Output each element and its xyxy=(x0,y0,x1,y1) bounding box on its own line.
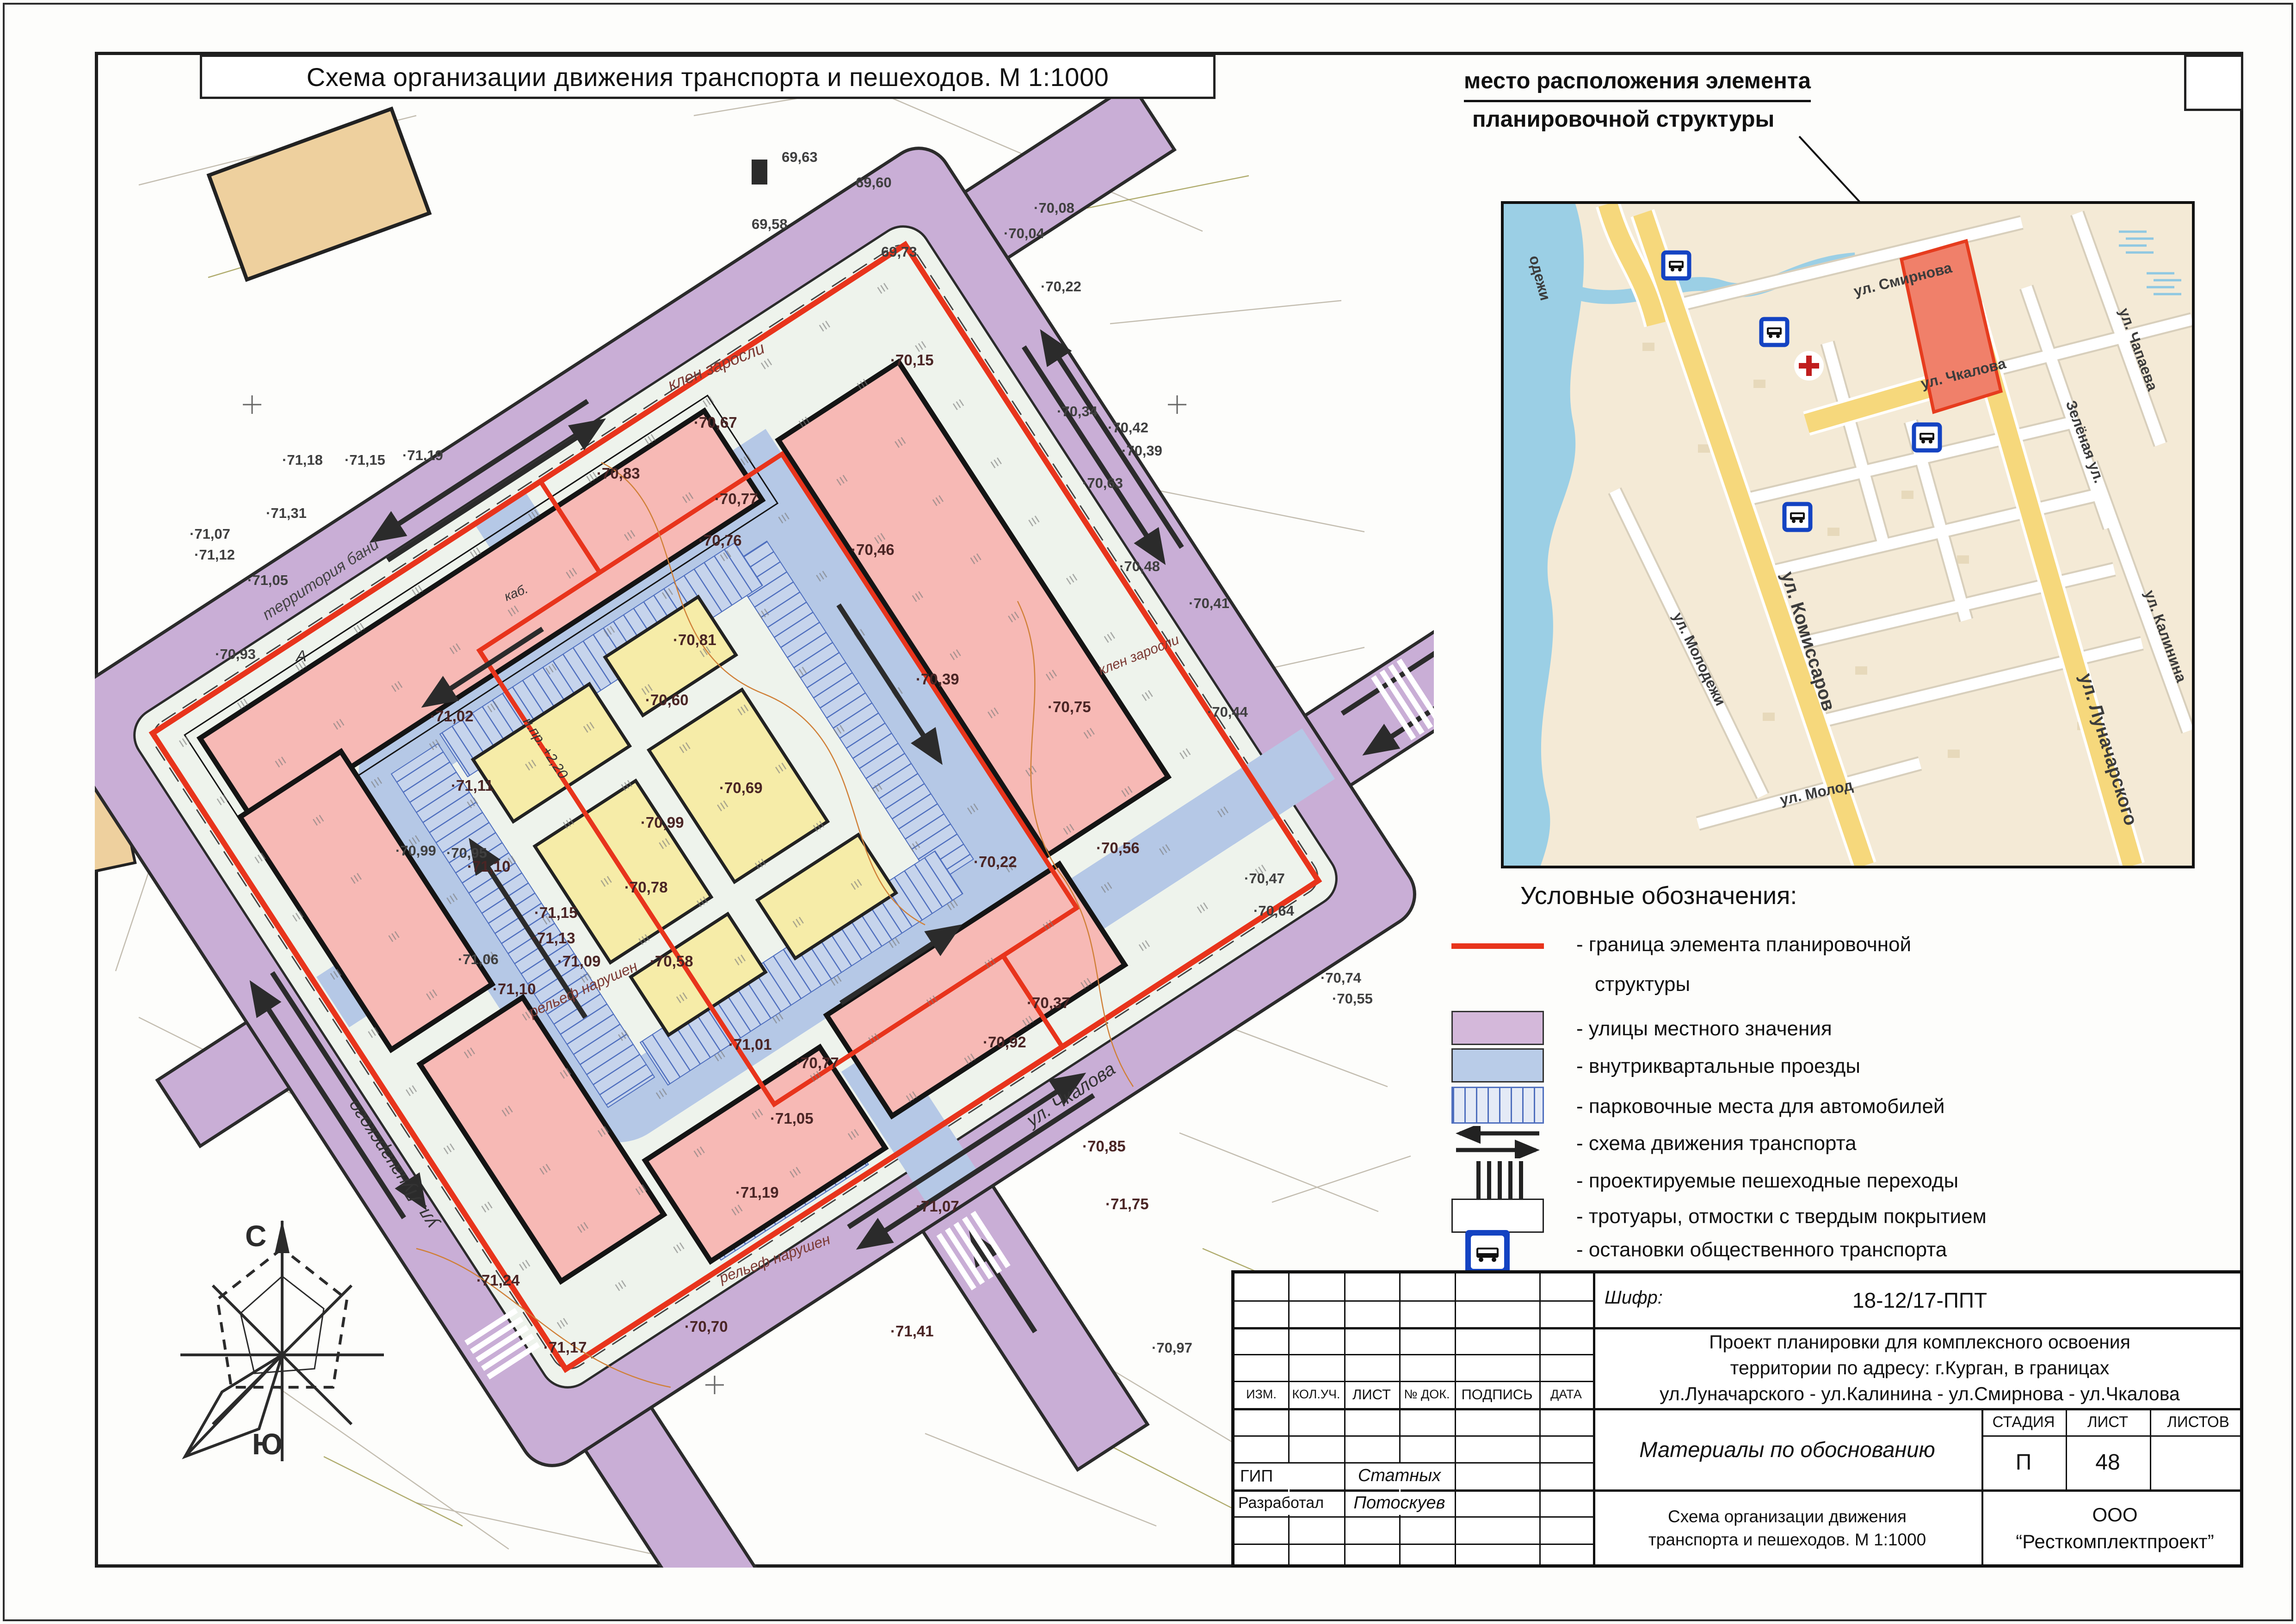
elevation-label: ·70,22 xyxy=(974,853,1017,870)
legend-item-label: - граница элемента планировочной xyxy=(1576,933,1911,956)
legend-swatch-sidewalks xyxy=(1451,1199,1544,1233)
organization-line: “Ресткомплектпроект” xyxy=(2016,1528,2214,1555)
doc-title-line: Схема организации движения xyxy=(1668,1505,1907,1528)
elevation-label: ·70,04 xyxy=(1004,225,1045,241)
elevation-label: ·71,15 xyxy=(534,904,578,921)
developer-label: Разработал xyxy=(1238,1489,1324,1516)
sheet-value: 48 xyxy=(2066,1435,2150,1489)
elevation-label: ·70,76 xyxy=(698,532,742,549)
project-title: Проект планировки для комплексного освое… xyxy=(1593,1328,2247,1408)
elevation-label: ·70,99 xyxy=(641,814,684,831)
stamp-line xyxy=(1455,1273,1456,1564)
elevation-label: ·71,01 xyxy=(728,1036,772,1053)
stamp-line xyxy=(1399,1273,1401,1564)
plan-note: А xyxy=(295,647,307,665)
organization: ООО “Ресткомплектпроект” xyxy=(1983,1492,2247,1564)
elevation-label: ·70,92 xyxy=(983,1033,1026,1051)
location-callout: место расположения элемента планировочно… xyxy=(1464,64,1811,136)
elevation-label: ·71,19 xyxy=(402,447,443,463)
format-corner-box xyxy=(2184,55,2243,111)
elevation-label: ·70,78 xyxy=(624,879,668,896)
legend-heading: Условные обозначения: xyxy=(1520,881,1797,910)
elevation-label: ·71,05 xyxy=(247,572,288,588)
title-block: Шифр: 18-12/17-ППТ Проект планировки для… xyxy=(1231,1270,2243,1568)
elevation-label: ·71,10 xyxy=(493,980,536,997)
elevation-label: ·71,24 xyxy=(476,1272,520,1289)
callout-line1: место расположения элемента xyxy=(1464,64,1811,102)
elevation-label: ·70,83 xyxy=(597,465,640,482)
stamp-line xyxy=(1234,1544,1593,1545)
developer-name: Потоскуев xyxy=(1344,1489,1455,1516)
elevation-label: ·71,07 xyxy=(190,526,230,542)
elevation-label: ·71,02 xyxy=(430,707,474,725)
elevation-label: ·70,95 xyxy=(446,845,487,861)
elevation-label: ·70,55 xyxy=(1332,990,1373,1007)
elevation-label: ·70,77 xyxy=(715,490,758,507)
hospital-icon xyxy=(1794,351,1824,381)
elevation-label: ·71,09 xyxy=(557,953,601,970)
elevation-label: ·71,13 xyxy=(532,929,575,947)
elevation-label: ·70,60 xyxy=(645,691,689,708)
stage-value: П xyxy=(1981,1435,2066,1489)
stamp-col-header: № ДОК. xyxy=(1399,1381,1455,1408)
elevation-label: ·70,37 xyxy=(1027,994,1070,1011)
elevation-label: ·71,17 xyxy=(543,1339,587,1356)
doc-title: Схема организации движения транспорта и … xyxy=(1593,1492,1981,1564)
existing-building xyxy=(209,109,430,279)
legend-item-label: - тротуары, отмостки с твердым покрытием xyxy=(1576,1205,1987,1228)
elevation-label: 69,58 xyxy=(752,216,788,232)
drawing-sheet: ул. Луначарского ул. Чкалова территория … xyxy=(0,0,2296,1624)
elevation-label: ·71,11 xyxy=(451,777,494,794)
drawing-title: Схема организации движения транспорта и … xyxy=(307,62,1109,92)
stamp-line xyxy=(1288,1273,1290,1564)
elevation-label: ·71,12 xyxy=(194,547,235,563)
doc-title-line: транспорта и пешеходов. М 1:1000 xyxy=(1648,1528,1926,1551)
stamp-line xyxy=(1234,1300,1593,1302)
drawing-title-box: Схема организации движения транспорта и … xyxy=(200,55,1216,99)
stamp-line xyxy=(1234,1435,1593,1437)
stamp-col-header: ИЗМ. xyxy=(1234,1381,1288,1408)
legend-swatch-boundary-line xyxy=(1451,943,1544,949)
sheets-header: ЛИСТОВ xyxy=(2150,1408,2247,1435)
elevation-label: ·70,77 xyxy=(796,1054,839,1071)
elevation-label: ·70,85 xyxy=(1082,1138,1126,1155)
elevation-label: 69,60 xyxy=(856,174,892,191)
elevation-label: ·70,69 xyxy=(719,779,763,796)
elevation-label: ·71,19 xyxy=(735,1184,779,1201)
legend-item-label: - внутриквартальные проезды xyxy=(1576,1055,1860,1078)
stamp-line xyxy=(1539,1273,1541,1564)
stamp-line xyxy=(1234,1354,1593,1355)
elevation-label: ·71,41 xyxy=(890,1323,934,1340)
elevation-label: ·70,34 xyxy=(1057,403,1098,419)
legend-swatch-driveways xyxy=(1451,1048,1544,1083)
elevation-label: ·71,31 xyxy=(266,505,307,521)
stage-header: СТАДИЯ xyxy=(1981,1408,2066,1435)
materials-label: Материалы по обоснованию xyxy=(1593,1410,1981,1488)
stamp-col-header: ЛИСТ xyxy=(1344,1381,1399,1408)
elevation-label: ·71,07 xyxy=(916,1198,959,1215)
legend-swatch-crosswalk xyxy=(1476,1161,1528,1199)
elevation-label: ·70,64 xyxy=(1253,903,1295,919)
elevation-label: ·71,06 xyxy=(458,951,499,967)
elevation-label: ·70,08 xyxy=(1034,200,1074,216)
elevation-label: ·70,48 xyxy=(1119,558,1160,574)
elevation-label: ·70,47 xyxy=(1244,870,1285,886)
elevation-label: 69,73 xyxy=(881,244,917,260)
elevation-label: ·70,39 xyxy=(1122,443,1162,459)
elevation-label: ·70,56 xyxy=(1096,839,1140,856)
legend-item-label: - проектируемые пешеходные переходы xyxy=(1576,1169,1958,1193)
compass-rose: С Ю xyxy=(153,1193,412,1470)
stamp-line xyxy=(1234,1408,1593,1410)
elevation-label: ·70,74 xyxy=(1321,970,1362,986)
elevation-label: ·71,75 xyxy=(1105,1195,1149,1212)
elevation-label: ·70,15 xyxy=(890,351,934,369)
organization-line: ООО xyxy=(2092,1501,2137,1528)
legend-item-label: структуры xyxy=(1595,973,1690,996)
legend-item-label: - парковочные места для автомобилей xyxy=(1576,1095,1945,1118)
elevation-label: ·70,97 xyxy=(1152,1340,1192,1356)
compass-south-label: Ю xyxy=(252,1427,283,1461)
legend-item-label: - схема движения транспорта xyxy=(1576,1132,1857,1155)
legend-swatch-local-streets xyxy=(1451,1011,1544,1045)
legend-item-label: - остановки общественного транспорта xyxy=(1576,1238,1947,1261)
elevation-label: ·70,41 xyxy=(1189,595,1229,611)
elevation-label: ·71,05 xyxy=(770,1110,814,1127)
legend-swatch-parking xyxy=(1451,1087,1544,1124)
stamp-line xyxy=(1344,1273,1346,1564)
elevation-label: ·70,44 xyxy=(1207,704,1248,720)
legend-swatch-traffic-arrows xyxy=(1451,1126,1544,1158)
stamp-col-header: КОЛ.УЧ. xyxy=(1288,1381,1344,1408)
compass-north-label: С xyxy=(245,1219,266,1253)
elevation-label: ·70,46 xyxy=(851,541,895,558)
elevation-label: ·70,22 xyxy=(1041,278,1081,295)
elevation-label: ·70,39 xyxy=(916,671,959,688)
project-title-line: Проект планировки для комплексного освое… xyxy=(1709,1329,2130,1355)
elevation-label: ·70,67 xyxy=(694,414,737,431)
elevation-label: ·70,58 xyxy=(650,953,693,970)
location-minimap: ул. Смирнова ул. Чкалова ул. Чапаева Зел… xyxy=(1501,201,2195,868)
elevation-label: ·70,75 xyxy=(1048,698,1091,715)
elevation-label: 69,63 xyxy=(782,149,818,165)
elevation-label: ·70,93 xyxy=(215,646,256,662)
legend-item-label: - улицы местного значения xyxy=(1576,1017,1832,1040)
elevation-label: ·70,63 xyxy=(1082,475,1123,491)
cipher-value: 18-12/17-ППТ xyxy=(1593,1286,2247,1315)
gip-label: ГИП xyxy=(1240,1462,1273,1489)
stamp-line xyxy=(1234,1327,1593,1329)
elevation-label: ·71,15 xyxy=(345,452,385,468)
stamp-col-header: ДАТА xyxy=(1539,1381,1593,1408)
stamp-line xyxy=(1234,1516,1593,1518)
sheets-value xyxy=(2150,1435,2247,1489)
elevation-label: ·71,18 xyxy=(282,452,323,468)
elevation-label: ·70,81 xyxy=(673,631,716,648)
elevation-label: ·70,99 xyxy=(395,843,436,859)
project-title-line: ул.Луначарского - ул.Калинина - ул.Смирн… xyxy=(1660,1381,2180,1407)
legend-swatch-bus-stop xyxy=(1465,1230,1510,1274)
elevation-label: ·70,70 xyxy=(685,1318,728,1335)
elevation-label: ·70,42 xyxy=(1108,419,1148,436)
gip-name: Статных xyxy=(1344,1462,1455,1489)
callout-line2: планировочной структуры xyxy=(1464,107,1774,132)
project-title-line: территории по адресу: г.Курган, в границ… xyxy=(1730,1355,2110,1381)
stamp-col-header: ПОДПИСЬ xyxy=(1455,1381,1539,1408)
sheet-header: ЛИСТ xyxy=(2066,1408,2150,1435)
survey-building-mark xyxy=(752,160,767,185)
